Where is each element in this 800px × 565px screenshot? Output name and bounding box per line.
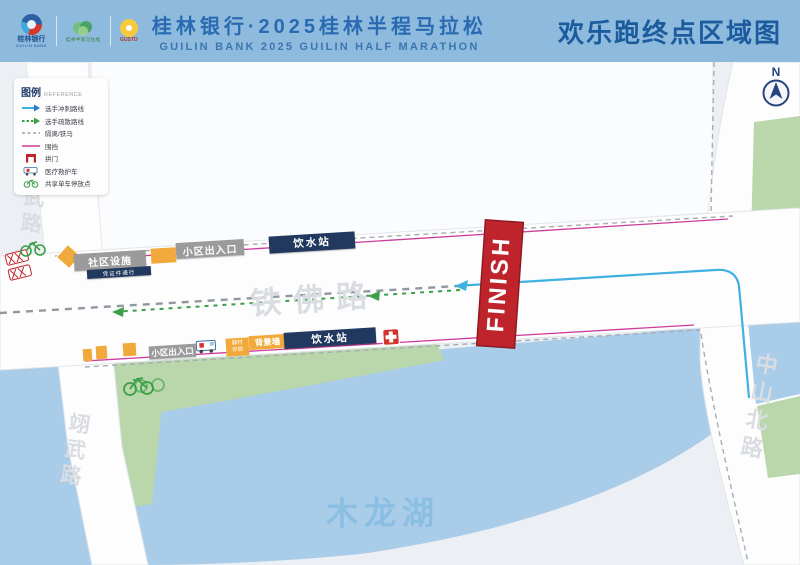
legend-item-barrier: 隔离/铁马 xyxy=(21,128,101,138)
map-title: 欢乐跑终点区域图 xyxy=(558,13,782,50)
event-title-block: 桂林银行·2025桂林半程马拉松 GUILIN BANK 2025 GUILIN… xyxy=(152,10,487,53)
legend-label-sprint: 选手冲刺路线 xyxy=(45,103,84,113)
orange-marker-north xyxy=(151,247,177,263)
legend-label-evac: 选手疏散路线 xyxy=(45,116,84,126)
legend-item-ambulance: 医疗救护车 xyxy=(21,166,101,176)
gusto-label: GUSTO xyxy=(120,38,138,43)
orange-marker-south-3 xyxy=(123,343,137,357)
logo-divider xyxy=(56,16,57,46)
legend-item-arch: 拱门 xyxy=(21,153,101,163)
equipment-box: 器材 存放 xyxy=(225,337,249,356)
orange-marker-south-1 xyxy=(83,349,93,362)
line-gray-dashed-icon xyxy=(21,129,41,137)
legend-item-fence: 围挡 xyxy=(21,141,101,151)
legend-label-ambulance: 医疗救护车 xyxy=(45,166,78,176)
guilin-bank-name-en: GUILIN BANK xyxy=(16,44,47,48)
legend-label-barrier: 隔离/铁马 xyxy=(45,128,73,138)
marathon-logo: 桂林半程马拉松 xyxy=(66,20,101,43)
ambulance-legend-icon xyxy=(21,166,41,176)
finish-arch-icon xyxy=(21,153,41,163)
legend-label-fence: 围挡 xyxy=(45,141,58,151)
gusto-logo: GUSTO xyxy=(120,19,138,43)
sponsor-logos: 桂林银行 GUILIN BANK 桂林半程马拉松 GUSTO xyxy=(16,14,138,48)
legend-subtitle: REFERENCE xyxy=(44,92,82,98)
orange-marker-south-2 xyxy=(96,346,108,360)
medical-cross-icon xyxy=(383,329,400,346)
gusto-icon xyxy=(120,19,138,37)
guilin-bank-logo: 桂林银行 GUILIN BANK xyxy=(16,14,47,48)
event-title-cn: 桂林银行·2025桂林半程马拉松 xyxy=(152,10,487,39)
marathon-logo-label: 桂林半程马拉松 xyxy=(66,38,101,43)
logo-divider-2 xyxy=(110,16,111,46)
legend-item-evac-route: 选手疏散路线 xyxy=(21,116,101,126)
arrow-blue-icon xyxy=(21,104,41,112)
legend-item-sprint-route: 选手冲刺路线 xyxy=(21,103,101,113)
finish-arch: FINISH xyxy=(477,220,524,348)
legend-item-bike: 共享单车停放点 xyxy=(21,178,101,188)
marathon-laurel-icon xyxy=(71,20,95,38)
legend-label-arch: 拱门 xyxy=(45,153,58,163)
lake-label: 木龙湖 xyxy=(326,488,440,534)
legend-title: 图例 xyxy=(21,84,41,99)
line-magenta-icon xyxy=(21,142,41,150)
event-title-en: GUILIN BANK 2025 GUILIN HALF MARATHON xyxy=(159,41,479,53)
legend-panel: 图例 REFERENCE 选手冲刺路线 选手疏散路线 隔离/铁马 xyxy=(14,78,108,195)
guilin-bank-icon xyxy=(21,14,42,35)
bike-legend-icon xyxy=(21,178,41,188)
backdrop-box: 背景墙 xyxy=(249,334,287,350)
equipment-line2: 存放 xyxy=(232,347,243,354)
compass-n-label: N xyxy=(772,65,781,79)
legend-label-bike: 共享单车停放点 xyxy=(45,178,91,188)
arrow-green-dashed-icon xyxy=(21,117,41,125)
map-canvas: FINISH xyxy=(0,62,800,565)
header-banner: 桂林银行 GUILIN BANK 桂林半程马拉松 GUSTO 桂林银行·2025… xyxy=(0,0,800,62)
